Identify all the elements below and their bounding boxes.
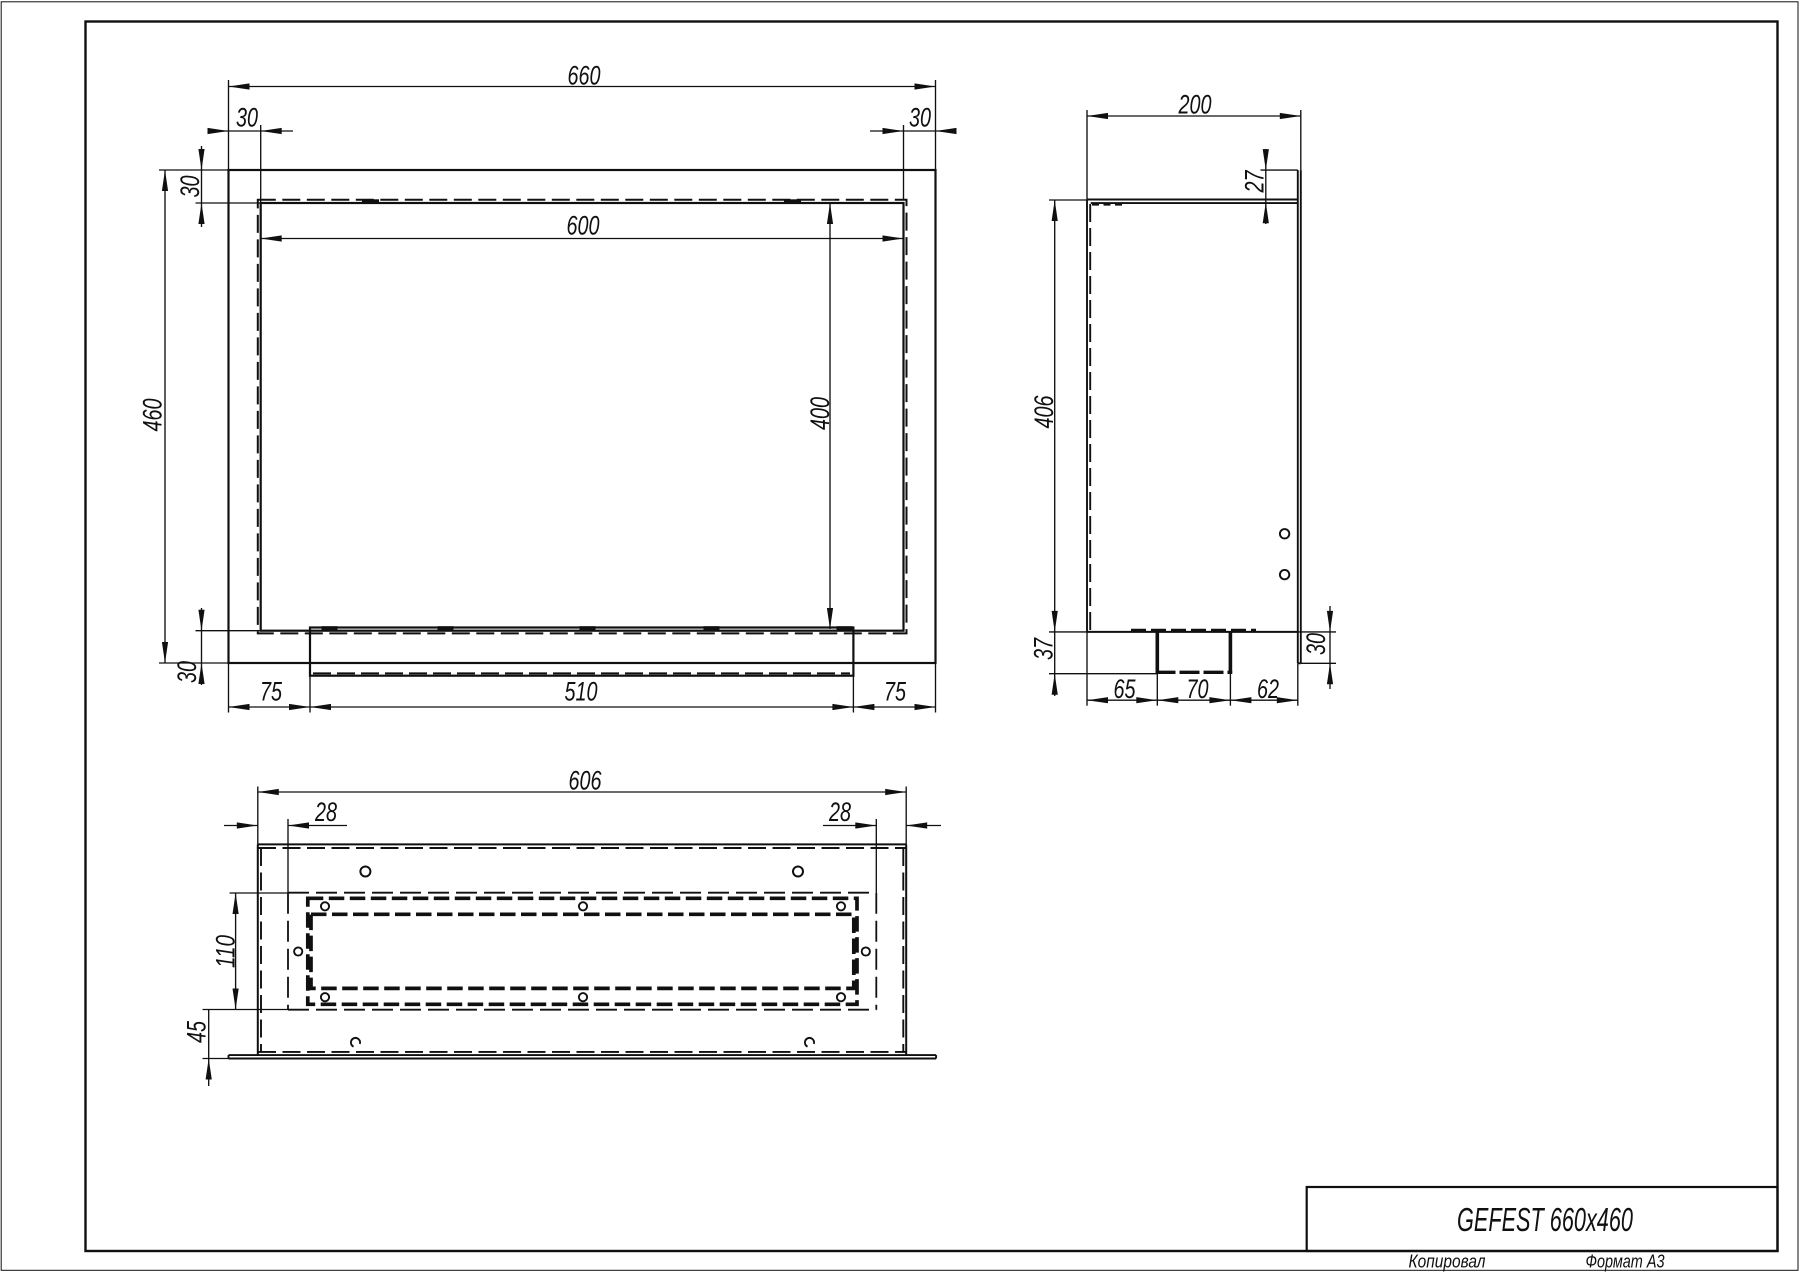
svg-text:460: 460: [138, 398, 168, 431]
svg-text:65: 65: [1114, 674, 1136, 704]
svg-text:30: 30: [1301, 633, 1331, 655]
svg-text:Формат А3: Формат А3: [1586, 1252, 1665, 1272]
svg-text:GEFEST 660x460: GEFEST 660x460: [1457, 1201, 1633, 1238]
svg-text:606: 606: [569, 766, 602, 796]
svg-text:70: 70: [1187, 674, 1209, 704]
svg-text:660: 660: [568, 61, 601, 91]
svg-text:406: 406: [1029, 395, 1059, 428]
svg-text:75: 75: [884, 677, 906, 707]
svg-text:30: 30: [175, 175, 205, 197]
svg-text:75: 75: [260, 677, 282, 707]
svg-text:Копировал: Копировал: [1409, 1252, 1486, 1272]
svg-text:600: 600: [567, 211, 600, 241]
svg-text:30: 30: [236, 103, 258, 133]
svg-text:28: 28: [828, 797, 851, 827]
svg-text:110: 110: [210, 935, 240, 968]
svg-text:62: 62: [1257, 674, 1279, 704]
svg-text:45: 45: [182, 1021, 212, 1043]
svg-text:28: 28: [314, 797, 337, 827]
svg-text:400: 400: [805, 397, 835, 430]
svg-text:30: 30: [909, 103, 931, 133]
svg-text:200: 200: [1178, 90, 1212, 120]
svg-text:37: 37: [1029, 637, 1059, 660]
svg-text:30: 30: [172, 661, 202, 683]
svg-text:510: 510: [565, 677, 598, 707]
svg-text:27: 27: [1240, 170, 1270, 194]
